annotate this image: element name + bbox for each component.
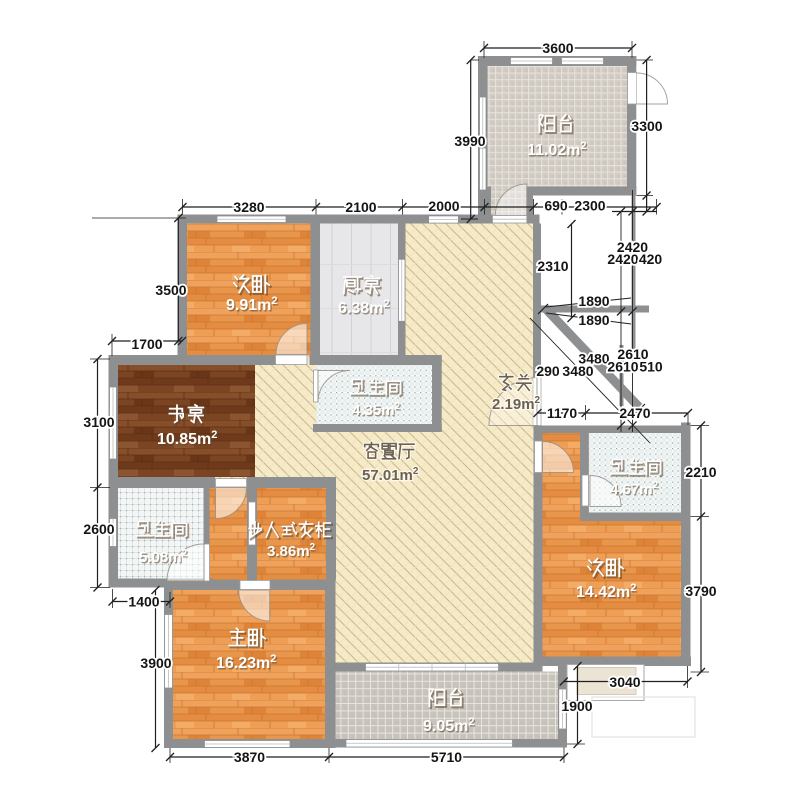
svg-text:2610: 2610 <box>607 359 638 375</box>
svg-text:510: 510 <box>639 359 663 375</box>
svg-text:1890: 1890 <box>578 293 609 309</box>
svg-text:2300: 2300 <box>574 198 605 214</box>
svg-text:6.38m2: 6.38m2 <box>338 298 390 317</box>
svg-text:5710: 5710 <box>431 749 462 765</box>
svg-text:2.19m2: 2.19m2 <box>492 395 541 413</box>
svg-text:3990: 3990 <box>454 133 485 149</box>
svg-text:10.85m2: 10.85m2 <box>157 429 217 448</box>
svg-text:3280: 3280 <box>233 199 264 215</box>
svg-text:9.05m2: 9.05m2 <box>423 716 475 735</box>
svg-text:3300: 3300 <box>631 118 662 134</box>
svg-text:3.86m2: 3.86m2 <box>267 542 316 560</box>
svg-text:2310: 2310 <box>537 258 568 274</box>
svg-text:5.08m2: 5.08m2 <box>139 548 188 566</box>
svg-text:2100: 2100 <box>345 199 376 215</box>
svg-text:3100: 3100 <box>83 414 114 430</box>
svg-text:16.23m2: 16.23m2 <box>216 653 276 672</box>
svg-text:2420: 2420 <box>607 251 638 267</box>
svg-text:690: 690 <box>544 198 568 214</box>
svg-text:57.01m2: 57.01m2 <box>362 466 419 484</box>
svg-text:3600: 3600 <box>542 40 573 56</box>
svg-text:420: 420 <box>639 251 663 267</box>
svg-text:290: 290 <box>536 363 560 379</box>
svg-text:9.91m2: 9.91m2 <box>226 295 278 314</box>
svg-text:1900: 1900 <box>561 698 592 714</box>
svg-text:1400: 1400 <box>128 594 159 610</box>
svg-text:2210: 2210 <box>685 464 716 480</box>
svg-text:1700: 1700 <box>131 336 162 352</box>
svg-text:11.02m2: 11.02m2 <box>527 140 587 159</box>
svg-text:2600: 2600 <box>83 521 114 537</box>
svg-text:3500: 3500 <box>155 282 186 298</box>
svg-text:3040: 3040 <box>609 674 640 690</box>
svg-text:1890: 1890 <box>578 312 609 328</box>
svg-text:14.42m2: 14.42m2 <box>576 582 636 601</box>
svg-text:3870: 3870 <box>234 749 265 765</box>
svg-text:3900: 3900 <box>140 655 171 671</box>
svg-text:2000: 2000 <box>428 198 459 214</box>
svg-text:2470: 2470 <box>619 405 650 421</box>
svg-text:4.35m2: 4.35m2 <box>352 401 401 419</box>
svg-text:4.67m2: 4.67m2 <box>610 480 659 498</box>
svg-text:3790: 3790 <box>685 583 716 599</box>
svg-text:3480: 3480 <box>562 363 593 379</box>
svg-text:1170: 1170 <box>547 405 578 421</box>
